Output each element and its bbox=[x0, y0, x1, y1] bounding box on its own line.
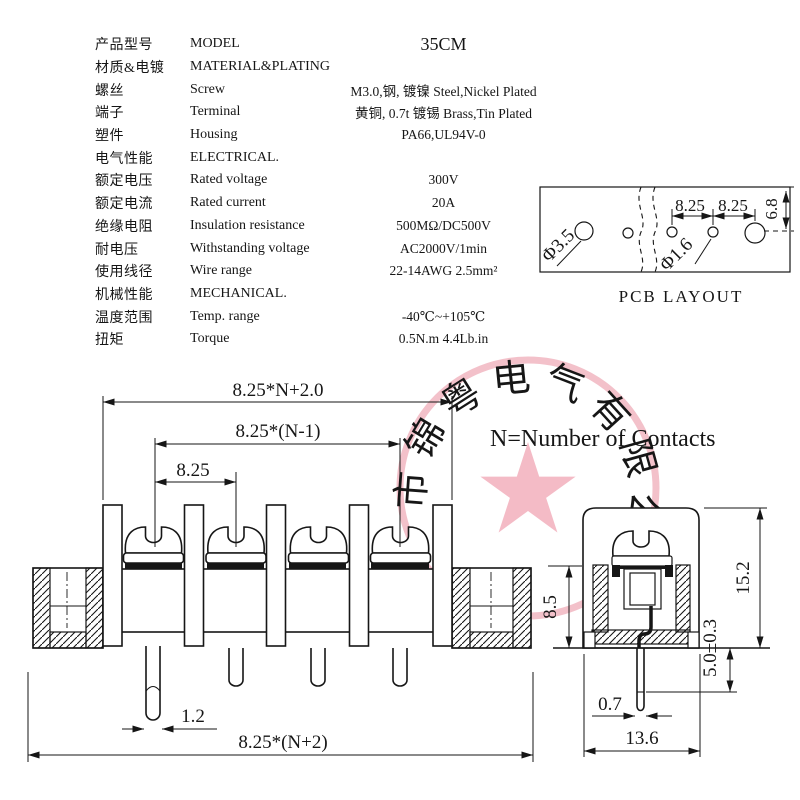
spec-value: 300V bbox=[330, 172, 557, 188]
spec-label-en: Insulation resistance bbox=[190, 218, 330, 234]
spec-label-en: Wire range bbox=[190, 263, 330, 279]
spec-label-en: MATERIAL&PLATING bbox=[190, 59, 330, 75]
spec-label-cn: 机械性能 bbox=[95, 284, 190, 304]
spec-label-en: ELECTRICAL. bbox=[190, 150, 330, 166]
spec-row: 额定电压 Rated voltage 300V bbox=[95, 169, 557, 192]
spec-row: 耐电压 Withstanding voltage AC2000V/1min bbox=[95, 237, 557, 260]
dim-side-pin-width: 0.7 bbox=[598, 694, 622, 715]
spec-value: AC2000V/1min bbox=[330, 241, 557, 257]
spec-label-cn: 端子 bbox=[95, 102, 190, 122]
spec-label-cn: 扭矩 bbox=[95, 329, 190, 349]
datasheet-page: 市锦粤电气有限公司 8.25 8.25 6.8 bbox=[0, 0, 800, 800]
spec-label-en: Temp. range bbox=[190, 309, 330, 325]
spec-label-cn: 塑件 bbox=[95, 125, 190, 145]
spec-label-en: Withstanding voltage bbox=[190, 241, 330, 257]
pcb-edge-offset-label: 6.8 bbox=[762, 198, 781, 219]
spec-row: 扭矩 Torque 0.5N.m 4.4Lb.in bbox=[95, 328, 557, 351]
spec-value: M3.0,钢, 镀镍 Steel,Nickel Plated bbox=[330, 80, 557, 100]
spec-table: 产品型号 MODEL 35CM 材质&电镀 MATERIAL&PLATING 螺… bbox=[95, 33, 557, 351]
spec-label-en: Housing bbox=[190, 127, 330, 143]
pcb-pitch-a-label: 8.25 bbox=[675, 196, 705, 215]
pcb-hole-small bbox=[623, 228, 633, 238]
spec-row: 额定电流 Rated current 20A bbox=[95, 192, 557, 215]
barrier-wall bbox=[267, 505, 286, 646]
barrier-wall bbox=[350, 505, 369, 646]
spec-row: 材质&电镀 MATERIAL&PLATING bbox=[95, 56, 557, 79]
spec-label-en: Screw bbox=[190, 82, 330, 98]
side-wall-section bbox=[593, 565, 608, 632]
spec-label-cn: 温度范围 bbox=[95, 307, 190, 327]
side-wall-section bbox=[676, 565, 690, 632]
spec-value: 黄铜, 0.7t 镀锡 Brass,Tin Plated bbox=[330, 102, 557, 122]
barrier-wall bbox=[185, 505, 204, 646]
dim-pitch: 8.25 bbox=[176, 460, 209, 481]
spec-row: 螺丝 Screw M3.0,钢, 镀镍 Steel,Nickel Plated bbox=[95, 78, 557, 101]
spec-label-en: MECHANICAL. bbox=[190, 286, 330, 302]
spec-value: 20A bbox=[330, 195, 557, 211]
spec-row: 塑件 Housing PA66,UL94V-0 bbox=[95, 124, 557, 147]
spec-value: -40℃~+105℃ bbox=[330, 309, 557, 325]
spec-label-en: Rated voltage bbox=[190, 172, 330, 188]
pcb-hole-large bbox=[575, 222, 593, 240]
contacts-note: N=Number of Contacts bbox=[490, 426, 716, 452]
spec-row: 绝缘电阻 Insulation resistance 500MΩ/DC500V bbox=[95, 215, 557, 238]
pcb-hole-small bbox=[667, 227, 677, 237]
barrier-wall bbox=[103, 505, 122, 646]
spec-value: 0.5N.m 4.4Lb.in bbox=[330, 331, 557, 347]
spec-label-en: Rated current bbox=[190, 195, 330, 211]
spec-row: 机械性能 MECHANICAL. bbox=[95, 283, 557, 306]
dim-total-height: 15.2 bbox=[733, 561, 754, 594]
spec-value: PA66,UL94V-0 bbox=[330, 127, 557, 143]
spec-label-cn: 电气性能 bbox=[95, 148, 190, 168]
pcb-layout-title: PCB LAYOUT bbox=[619, 287, 744, 306]
dim-side-width: 13.6 bbox=[625, 728, 658, 749]
front-left-flange bbox=[33, 568, 103, 648]
screw-front bbox=[289, 527, 349, 563]
dim-body-height: 8.5 bbox=[540, 595, 561, 619]
spec-value: 500MΩ/DC500V bbox=[330, 218, 557, 234]
barrier-wall bbox=[433, 505, 452, 646]
dim-pin-length: 5.0±0.3 bbox=[700, 619, 721, 677]
side-view: 8.5 15.2 5.0±0.3 0.7 13.6 bbox=[540, 508, 770, 757]
spec-label-cn: 耐电压 bbox=[95, 239, 190, 259]
front-view: 8.25*N+2.0 8.25*(N-1) 8.25 1.2 8.25*(N+2… bbox=[28, 380, 533, 762]
dim-bottom-overall: 8.25*(N+2) bbox=[238, 732, 327, 753]
spec-label-cn: 额定电流 bbox=[95, 193, 190, 213]
spec-row: 端子 Terminal 黄铜, 0.7t 镀锡 Brass,Tin Plated bbox=[95, 101, 557, 124]
dim-pitch-span: 8.25*(N-1) bbox=[236, 421, 321, 442]
spec-label-en: MODEL bbox=[190, 36, 330, 52]
screw-front bbox=[124, 527, 184, 563]
spec-row: 电气性能 ELECTRICAL. bbox=[95, 146, 557, 169]
spec-row: 使用线径 Wire range 22-14AWG 2.5mm² bbox=[95, 260, 557, 283]
pcb-pitch-b-label: 8.25 bbox=[718, 196, 748, 215]
spec-label-cn: 螺丝 bbox=[95, 80, 190, 100]
spec-value-model: 35CM bbox=[330, 34, 557, 55]
dim-pin-width: 1.2 bbox=[181, 706, 205, 727]
spec-row: 产品型号 MODEL 35CM bbox=[95, 33, 557, 56]
spec-label-cn: 产品型号 bbox=[95, 34, 190, 54]
spec-value: 22-14AWG 2.5mm² bbox=[330, 263, 557, 279]
spec-label-cn: 使用线径 bbox=[95, 261, 190, 281]
pcb-layout-view: 8.25 8.25 6.8 Φ3.5 Φ1.6 PCB LAYOUT bbox=[538, 187, 794, 306]
pcb-hole-large bbox=[745, 223, 765, 243]
spec-label-en: Terminal bbox=[190, 104, 330, 120]
dim-top-overall: 8.25*N+2.0 bbox=[233, 380, 324, 401]
spec-label-en: Torque bbox=[190, 331, 330, 347]
spec-label-cn: 绝缘电阻 bbox=[95, 216, 190, 236]
watermark-star-icon bbox=[480, 442, 575, 533]
spec-label-cn: 额定电压 bbox=[95, 170, 190, 190]
spec-label-cn: 材质&电镀 bbox=[95, 57, 190, 77]
front-right-flange bbox=[452, 568, 531, 648]
side-pin bbox=[637, 648, 644, 711]
spec-row: 温度范围 Temp. range -40℃~+105℃ bbox=[95, 305, 557, 328]
pcb-hole-small bbox=[708, 227, 718, 237]
